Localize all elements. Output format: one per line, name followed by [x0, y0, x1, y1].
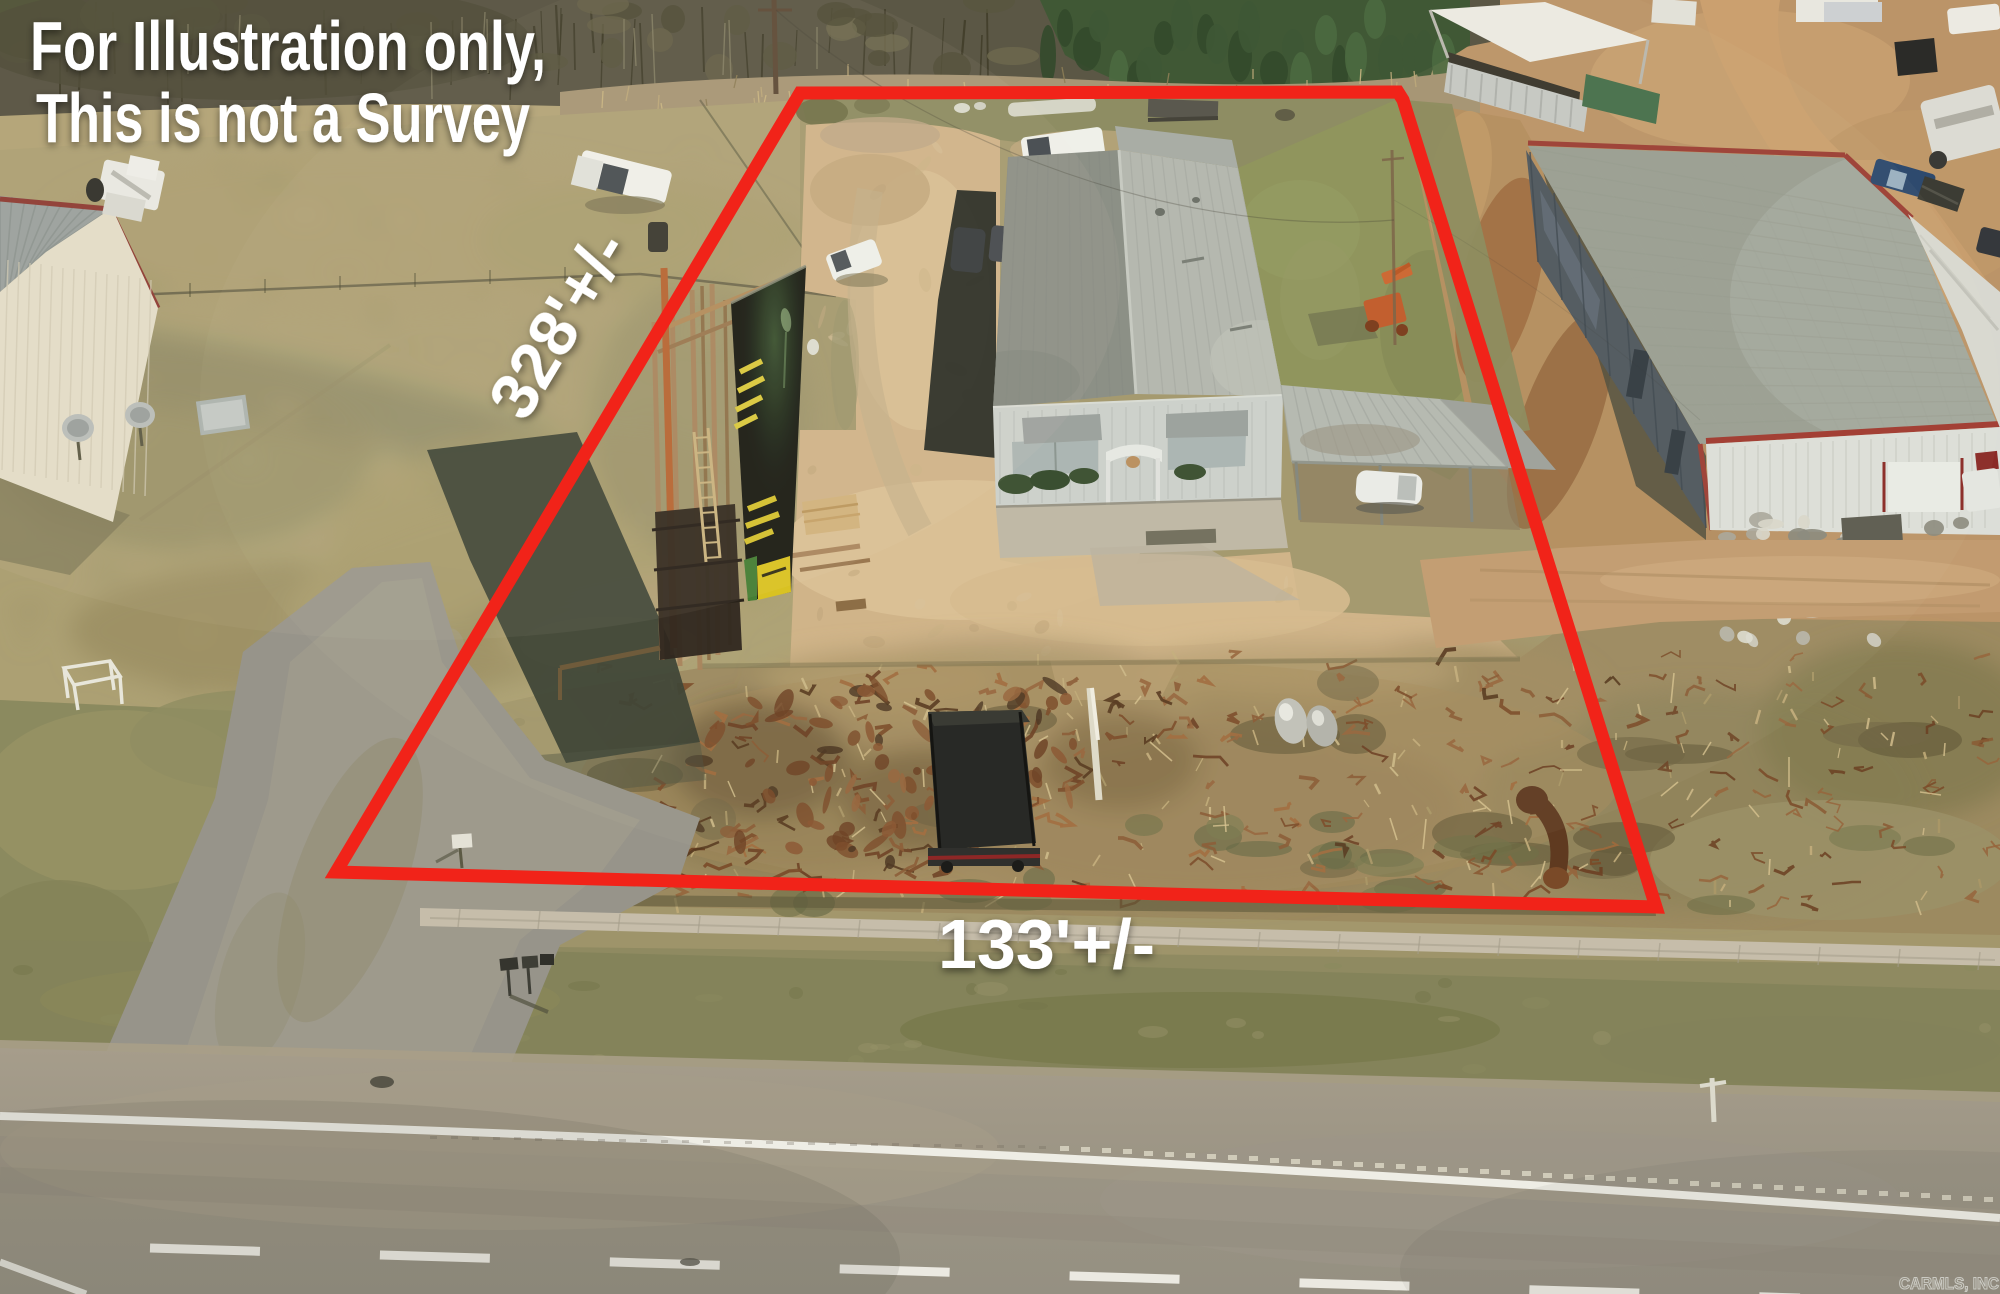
svg-text:CARMLS, INC: CARMLS, INC — [1899, 1274, 1999, 1293]
svg-text:This is not a Survey: This is not a Survey — [36, 79, 530, 157]
svg-text:133'+/-: 133'+/- — [938, 905, 1155, 983]
svg-text:For Illustration only,: For Illustration only, — [30, 7, 546, 85]
